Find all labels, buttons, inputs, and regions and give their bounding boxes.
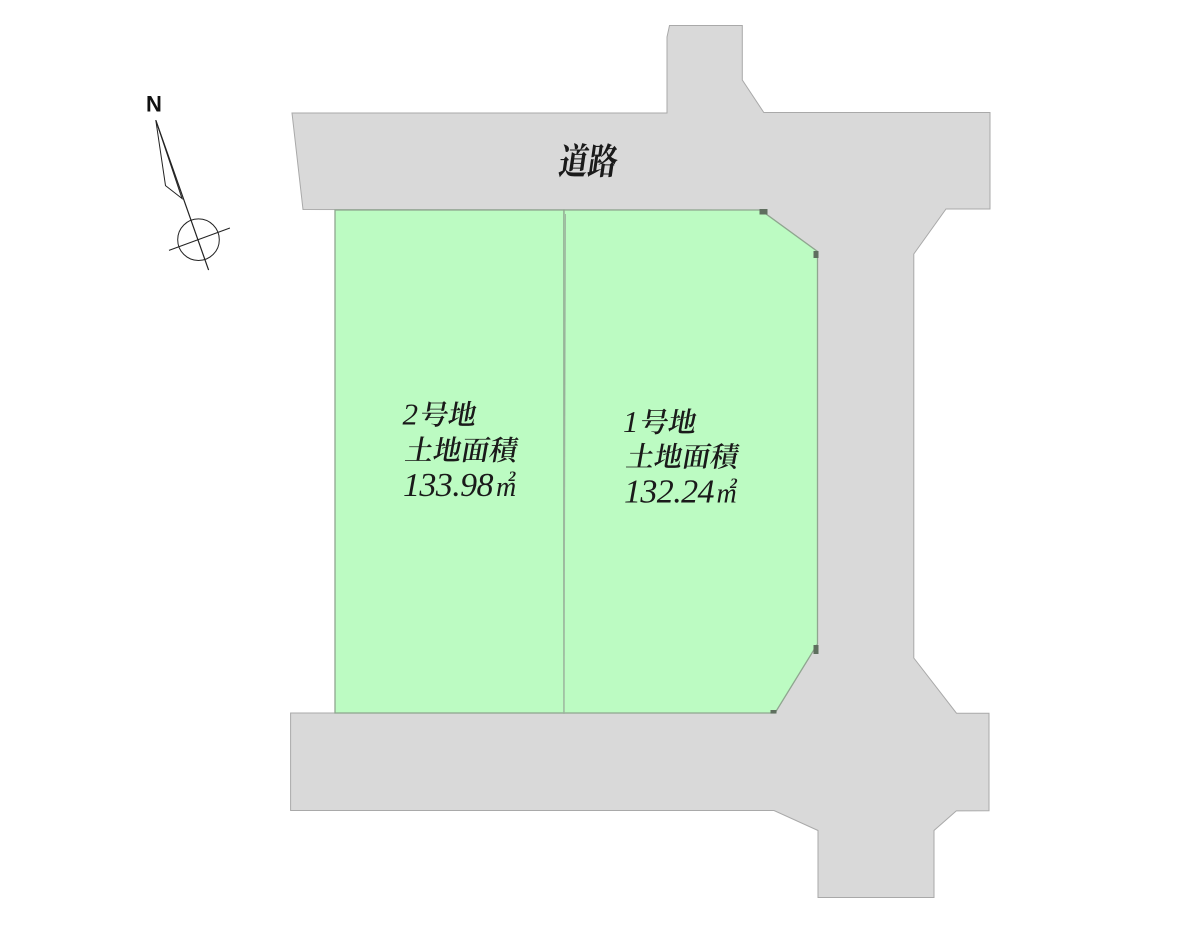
svg-text:N: N xyxy=(146,92,162,117)
svg-text:2: 2 xyxy=(403,397,419,432)
svg-text:2: 2 xyxy=(508,469,517,485)
svg-text:2: 2 xyxy=(729,476,738,492)
svg-text:133.98: 133.98 xyxy=(403,467,494,504)
svg-text:1: 1 xyxy=(623,404,639,439)
svg-text:132.24: 132.24 xyxy=(624,474,715,511)
